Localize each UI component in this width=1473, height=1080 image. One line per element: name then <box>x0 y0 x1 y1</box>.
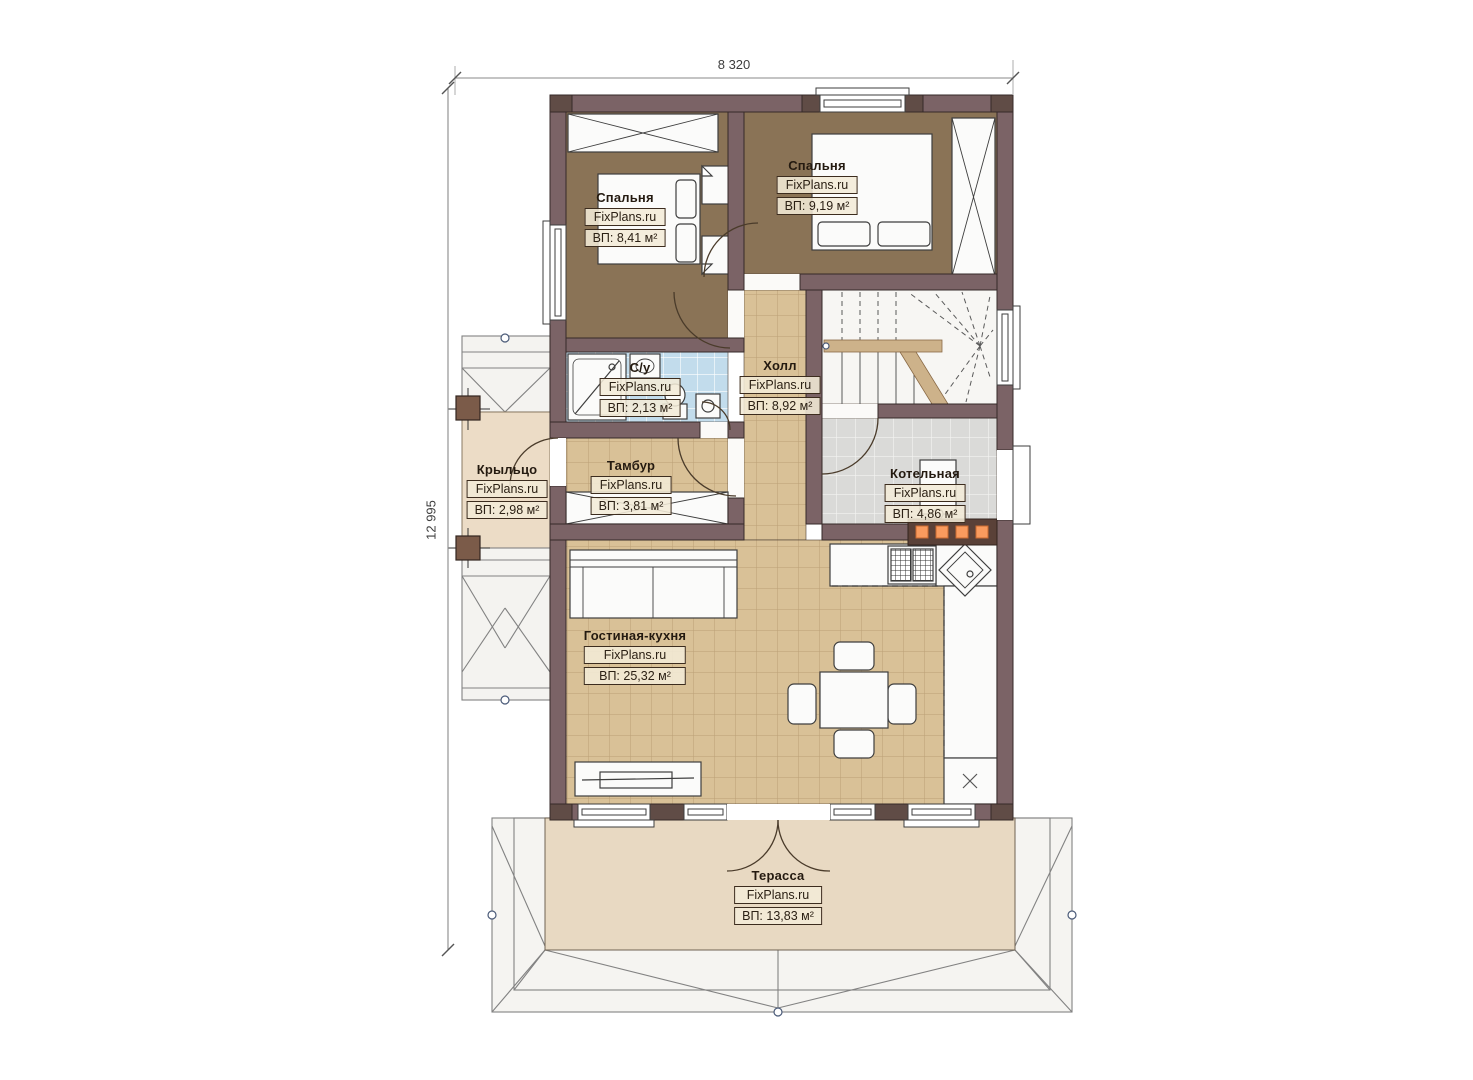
window <box>684 804 727 820</box>
room-area: ВП: 8,92 м² <box>740 397 821 415</box>
floor-hall <box>744 290 806 540</box>
window <box>574 804 654 827</box>
room-area: ВП: 9,19 м² <box>777 197 858 215</box>
room-label-boiler-room: Котельная FixPlans.ru ВП: 4,86 м² <box>885 466 966 523</box>
brand-watermark: FixPlans.ru <box>734 886 822 904</box>
brand-watermark: FixPlans.ru <box>584 646 686 664</box>
brand-watermark: FixPlans.ru <box>777 176 858 194</box>
brand-watermark: FixPlans.ru <box>885 484 966 502</box>
room-name: Крыльцо <box>467 462 548 477</box>
floor-plan-canvas: 8 320 12 995 Спальня FixPlans.ru ВП: 8,4… <box>0 0 1473 1080</box>
room-label-living-kitchen: Гостиная-кухня FixPlans.ru ВП: 25,32 м² <box>584 628 686 685</box>
room-area: ВП: 13,83 м² <box>734 907 822 925</box>
window <box>830 804 875 820</box>
room-name: Холл <box>740 358 821 373</box>
room-name: Спальня <box>585 190 666 205</box>
room-name: Гостиная-кухня <box>584 628 686 643</box>
room-area: ВП: 8,41 м² <box>585 229 666 247</box>
room-name: Тамбур <box>591 458 672 473</box>
room-area: ВП: 2,13 м² <box>600 399 681 417</box>
room-area: ВП: 4,86 м² <box>885 505 966 523</box>
brand-watermark: FixPlans.ru <box>585 208 666 226</box>
brand-watermark: FixPlans.ru <box>740 376 821 394</box>
room-area: ВП: 2,98 м² <box>467 501 548 519</box>
brand-watermark: FixPlans.ru <box>591 476 672 494</box>
room-label-hall: Холл FixPlans.ru ВП: 8,92 м² <box>740 358 821 415</box>
room-area: ВП: 25,32 м² <box>584 667 686 685</box>
entry-door <box>550 438 566 486</box>
tv-stand-icon <box>575 762 701 796</box>
dimension-width-label: 8 320 <box>718 57 751 72</box>
dimension-height-label: 12 995 <box>424 500 439 540</box>
brand-watermark: FixPlans.ru <box>467 480 548 498</box>
room-name: Котельная <box>885 466 966 481</box>
room-label-bedroom-1: Спальня FixPlans.ru ВП: 8,41 м² <box>585 190 666 247</box>
room-label-terrace: Терасса FixPlans.ru ВП: 13,83 м² <box>734 868 822 925</box>
room-label-bedroom-2: Спальня FixPlans.ru ВП: 9,19 м² <box>777 158 858 215</box>
boiler-exterior-door <box>997 446 1030 524</box>
room-label-vestibule: Тамбур FixPlans.ru ВП: 3,81 м² <box>591 458 672 515</box>
room-area: ВП: 3,81 м² <box>591 497 672 515</box>
room-name: С/у <box>600 360 681 375</box>
room-label-porch: Крыльцо FixPlans.ru ВП: 2,98 м² <box>467 462 548 519</box>
brand-watermark: FixPlans.ru <box>600 378 681 396</box>
room-name: Спальня <box>777 158 858 173</box>
room-name: Терасса <box>734 868 822 883</box>
stove-icon <box>888 546 936 584</box>
window <box>904 804 979 827</box>
window <box>997 306 1020 389</box>
window <box>816 88 909 112</box>
sofa-icon <box>570 550 737 618</box>
porch-roof-lower <box>462 548 550 700</box>
room-label-bathroom: С/у FixPlans.ru ВП: 2,13 м² <box>600 360 681 417</box>
terrace-door <box>727 804 830 820</box>
window <box>543 221 566 324</box>
